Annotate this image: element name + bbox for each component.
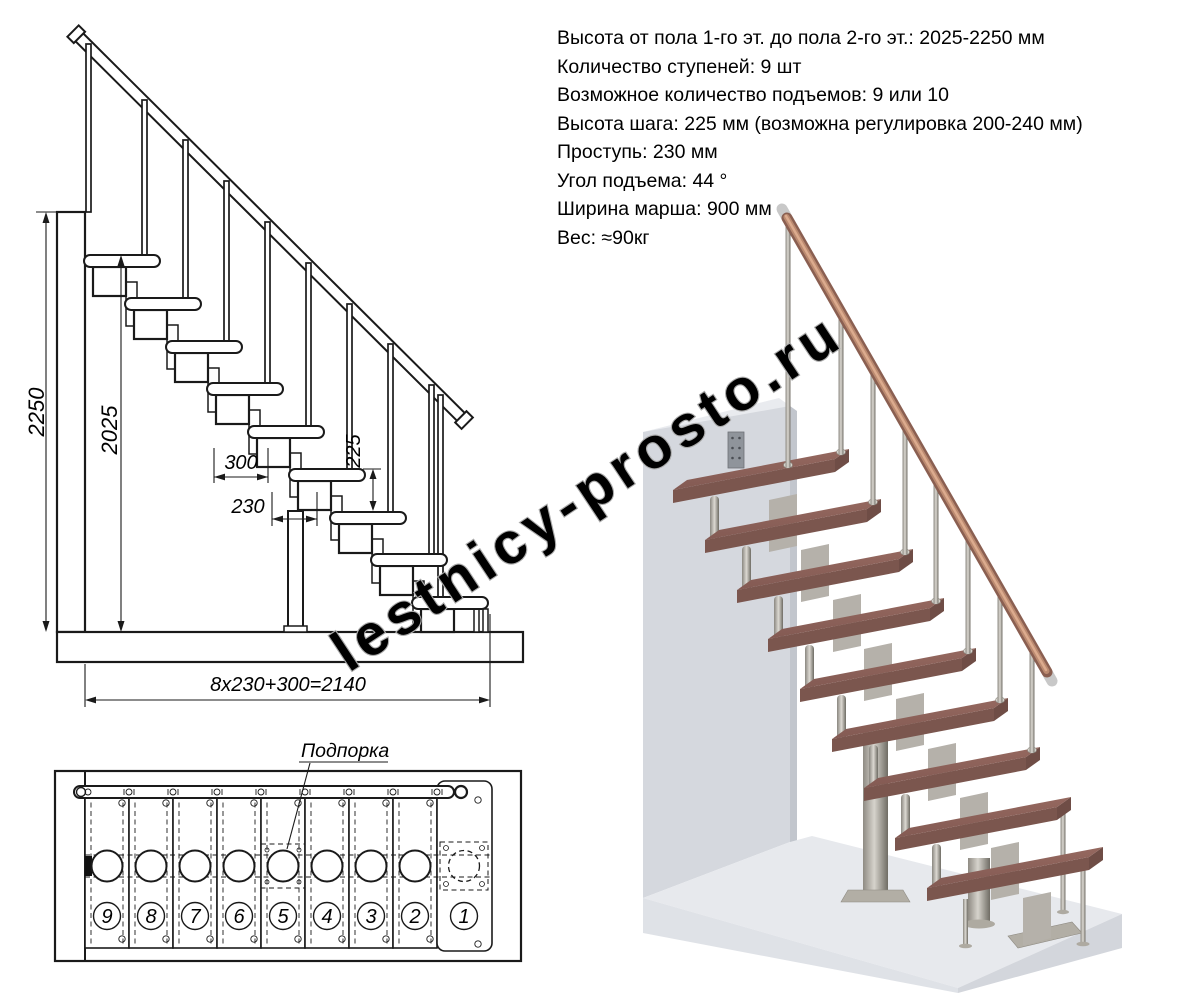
step-number: 1 xyxy=(458,906,469,928)
side-end-leg xyxy=(483,609,488,632)
spec-line-floor-height: Высота от пола 1-го эт. до пола 2-го эт.… xyxy=(557,24,1117,53)
step-number: 6 xyxy=(233,906,245,928)
step-number: 7 xyxy=(189,906,201,928)
spec-line-width: Ширина марша: 900 мм xyxy=(557,195,1117,224)
spec-line-angle: Угол подъема: 44 ° xyxy=(557,167,1117,196)
spec-line-step-count: Количество ступеней: 9 шт xyxy=(557,53,1117,82)
dim-total-height-label: 2250 xyxy=(24,387,49,438)
step-number: 9 xyxy=(101,906,112,928)
step-number: 2 xyxy=(408,906,420,928)
specs-panel: Высота от пола 1-го эт. до пола 2-го эт.… xyxy=(557,24,1117,252)
dim-height-to-top-step-label: 2025 xyxy=(97,405,122,456)
step-number: 8 xyxy=(145,906,156,928)
spec-line-step-height: Высота шага: 225 мм (возможна регулировк… xyxy=(557,110,1117,139)
plan-step-numbers: 9 8 7 6 5 4 3 2 1 xyxy=(94,903,478,930)
plan-view-drawing: 9 8 7 6 5 4 3 2 1 Подпорка xyxy=(55,740,521,961)
spec-line-rise-count: Возможное количество подъемов: 9 или 10 xyxy=(557,81,1117,110)
step-number: 5 xyxy=(277,906,289,928)
dim-step-height-label: 225 xyxy=(343,433,365,468)
side-baseplate xyxy=(57,632,523,662)
step-number: 4 xyxy=(321,906,332,928)
dim-total-run-label: 8x230+300=2140 xyxy=(210,674,366,696)
page: { "specs": { "lines": [ "Высота от пола … xyxy=(0,0,1191,993)
side-wall xyxy=(57,212,85,632)
plan-column-circles xyxy=(92,851,480,882)
wall-mount-plate xyxy=(728,432,744,468)
dim-tread-depth-label: 230 xyxy=(230,496,264,518)
dim-top-step-depth-label: 300 xyxy=(224,452,257,474)
side-support-post xyxy=(284,511,307,632)
step-number: 3 xyxy=(365,906,376,928)
plan-support-label: Подпорка xyxy=(301,740,389,762)
plan-handrail xyxy=(74,786,467,798)
spec-line-weight: Вес: ≈90кг xyxy=(557,224,1117,253)
spec-line-tread: Проступь: 230 мм xyxy=(557,138,1117,167)
render-3d xyxy=(643,209,1122,993)
side-end-leg xyxy=(474,609,479,632)
